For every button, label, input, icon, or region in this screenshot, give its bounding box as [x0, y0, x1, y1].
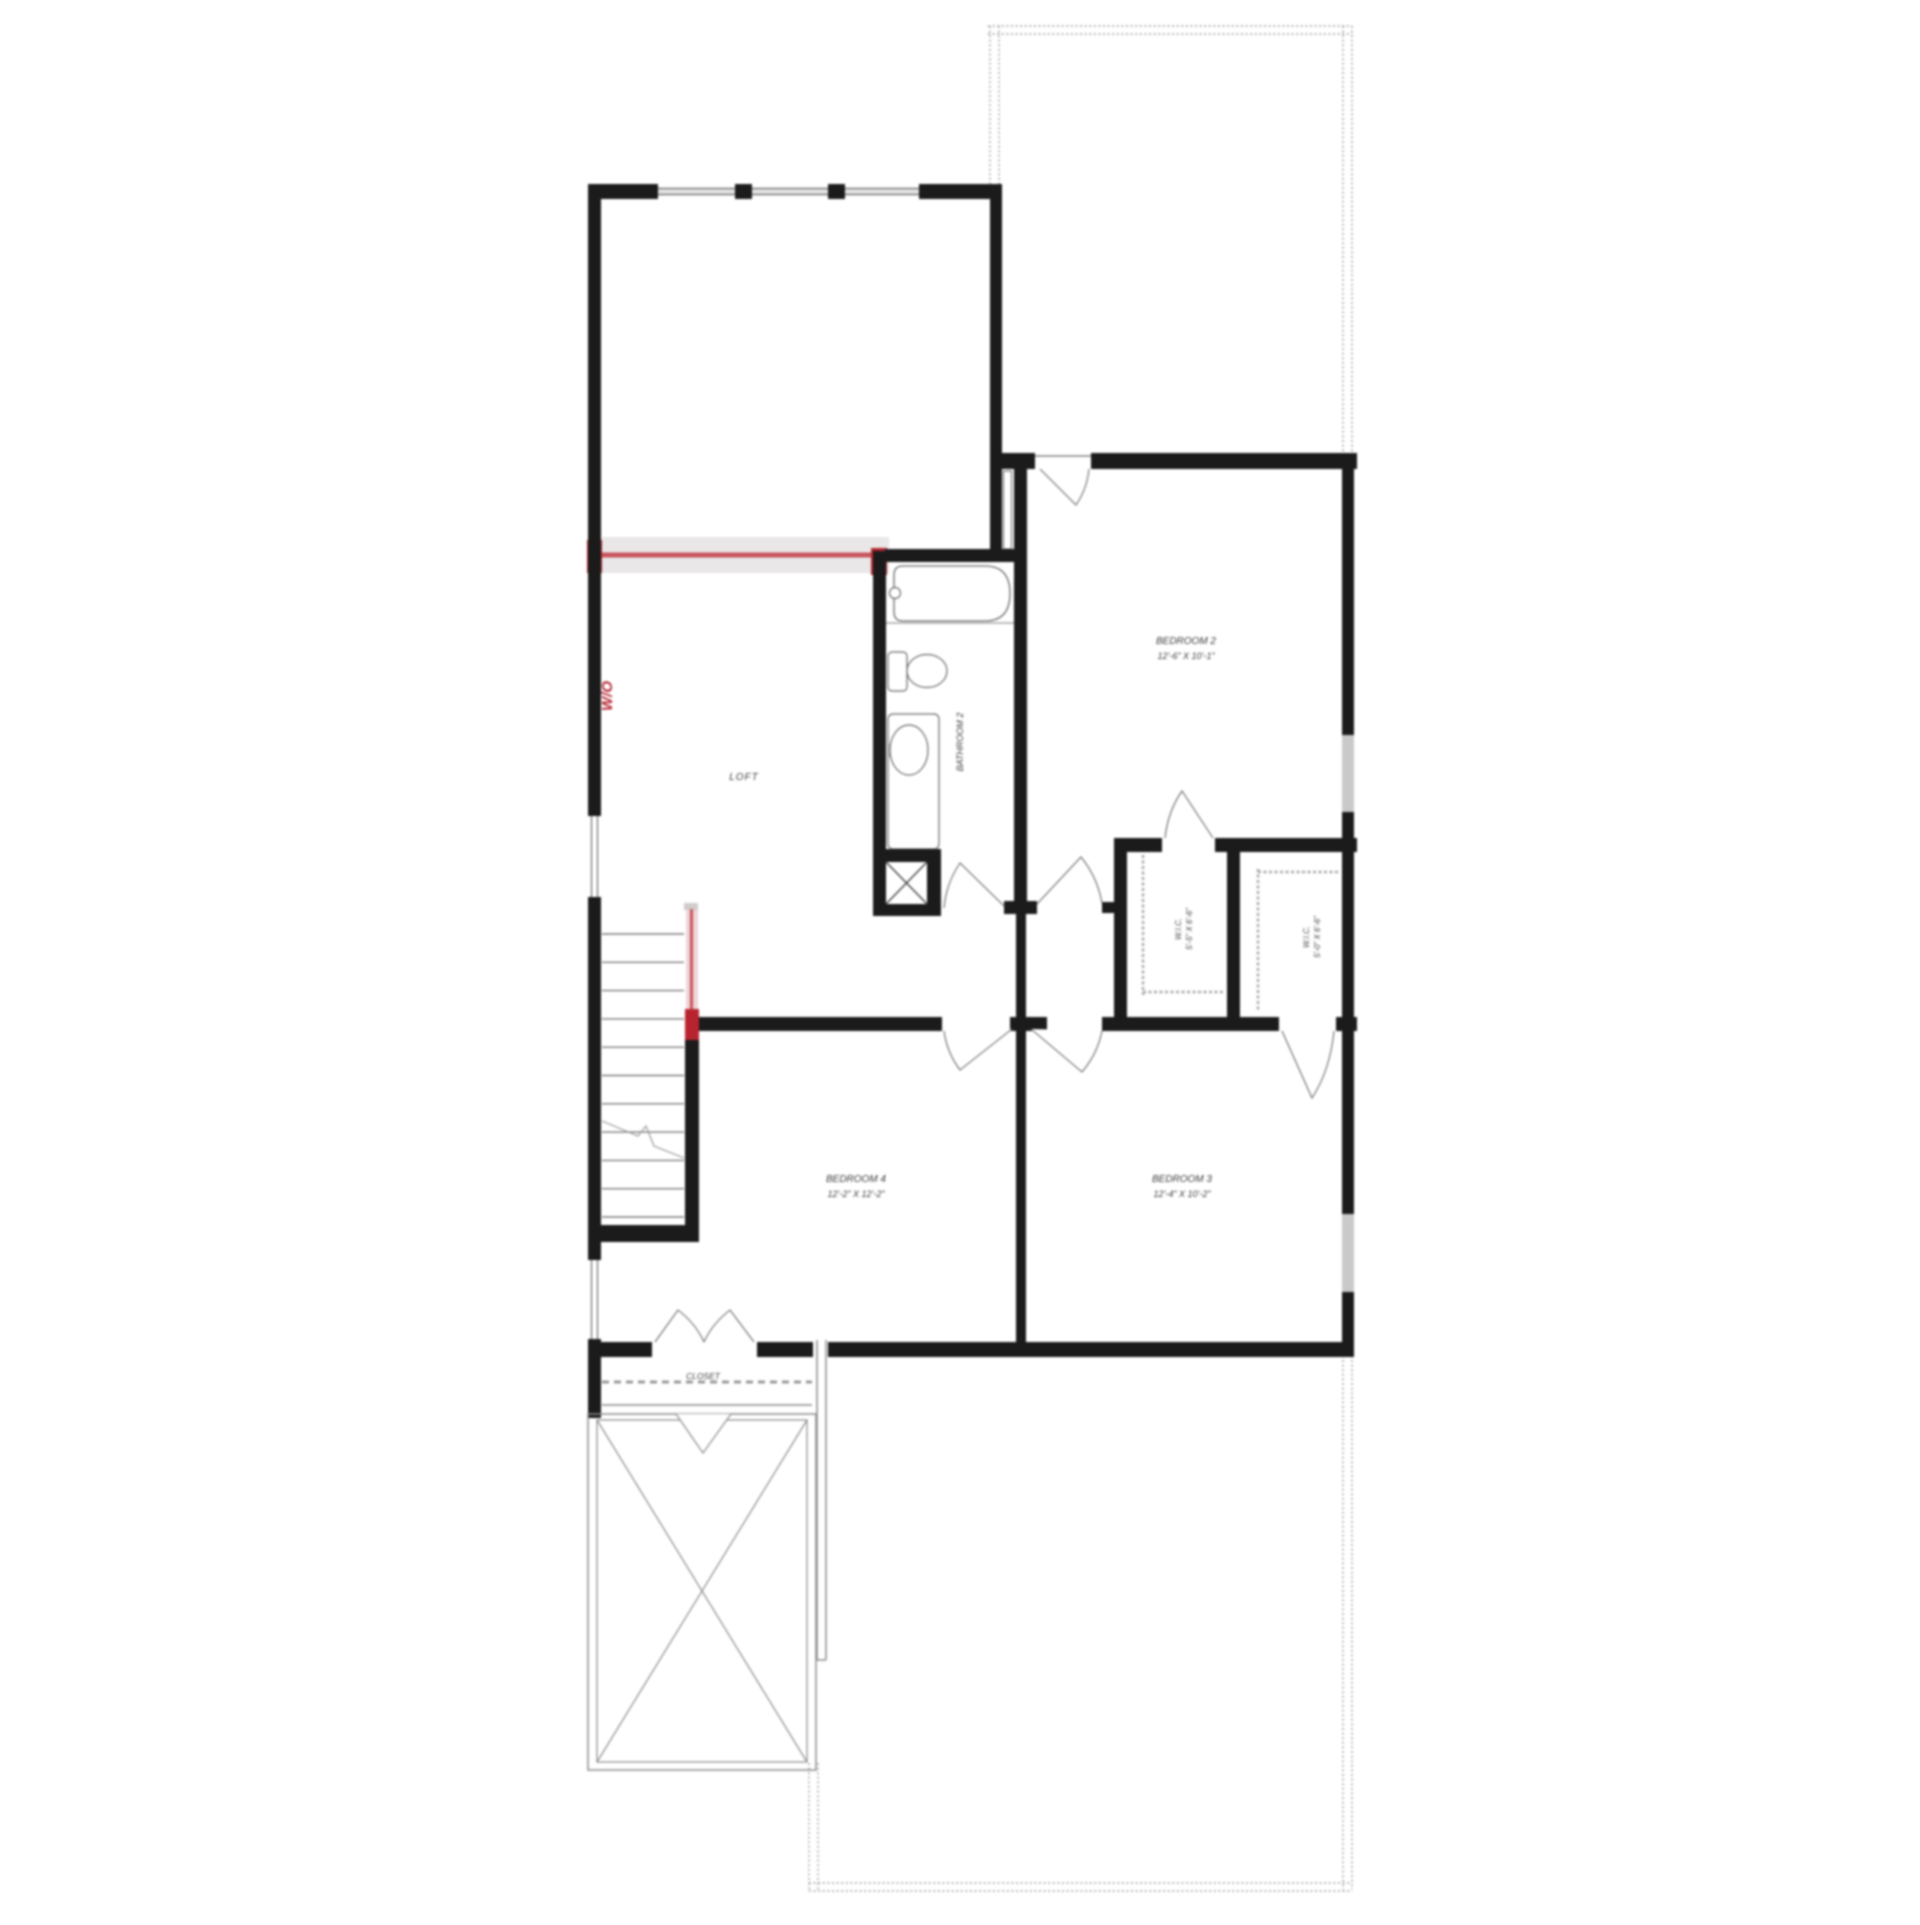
svg-text:BATHROOM 2: BATHROOM 2 — [955, 713, 965, 772]
svg-text:5’-0” X 6’-6”: 5’-0” X 6’-6” — [1313, 916, 1322, 958]
svg-text:BEDROOM 2: BEDROOM 2 — [1156, 636, 1216, 647]
svg-text:12’-2” X 12’-2”: 12’-2” X 12’-2” — [827, 1189, 885, 1199]
svg-text:CLOSET: CLOSET — [686, 1371, 721, 1381]
svg-text:12’-4” X 10’-2”: 12’-4” X 10’-2” — [1153, 1189, 1211, 1199]
svg-text:LOFT: LOFT — [729, 772, 759, 783]
svg-text:12’-6” X 10’-1”: 12’-6” X 10’-1” — [1157, 651, 1215, 661]
svg-text:W/O: W/O — [599, 681, 616, 711]
svg-text:5’-5” X 6’-6”: 5’-5” X 6’-6” — [1185, 908, 1194, 950]
svg-text:BEDROOM 3: BEDROOM 3 — [1152, 1174, 1212, 1185]
svg-text:W.I.C.: W.I.C. — [1174, 918, 1183, 940]
svg-text:BEDROOM 4: BEDROOM 4 — [826, 1174, 886, 1185]
svg-text:W.I.C.: W.I.C. — [1302, 926, 1311, 948]
